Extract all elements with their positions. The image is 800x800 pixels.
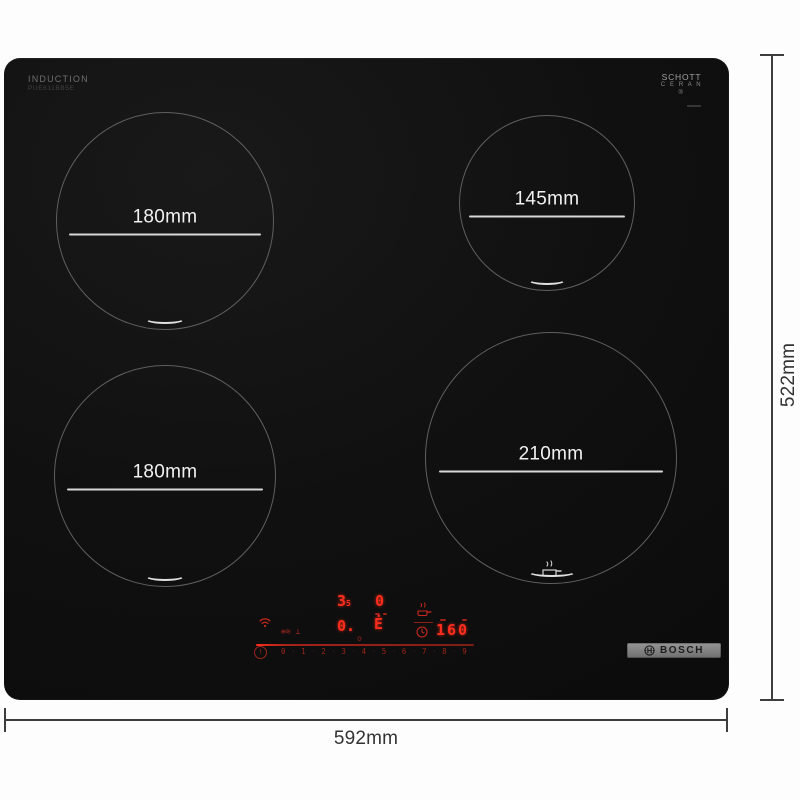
schott-text: SCHOTT — [659, 73, 704, 81]
width-dimension-cap-left — [4, 708, 6, 732]
slider-level: 3 — [341, 647, 346, 656]
cooking-zone-bottom-left: 180mm — [54, 365, 276, 587]
zone-diameter-label: 145mm — [515, 189, 580, 211]
zone-diameter-label: 210mm — [519, 444, 584, 466]
bosch-anchor-icon — [644, 645, 655, 656]
zone-notch-mark — [528, 567, 576, 577]
zone-notch-mark — [145, 314, 185, 324]
timer-display: 160 — [436, 623, 469, 638]
height-dimension-cap-bottom — [760, 699, 784, 701]
zone-diameter-line — [469, 216, 625, 218]
width-dimension-cap-right — [726, 708, 728, 732]
height-dimension-cap-top — [760, 54, 784, 56]
cooking-zone-top-right: 145mm — [459, 115, 635, 291]
burner-a-value: 3 — [337, 592, 346, 610]
width-dimension-line — [4, 719, 728, 721]
schott-fineprint-bar — [687, 105, 701, 107]
slider-level: 0 — [281, 647, 286, 656]
power-level-slider: 0· 1· 2· 3· 4· 5· 6· 7· 8· 9 — [281, 647, 467, 656]
zone-diameter-line — [67, 489, 263, 491]
zone-diameter-label: 180mm — [133, 207, 198, 229]
zone-notch-mark — [528, 275, 566, 285]
fry-sensor-icon — [415, 602, 432, 619]
burner-c-sub-glyph: o — [357, 634, 362, 643]
burner-display-b: 0 — [375, 594, 384, 609]
slider-level: 8 — [442, 647, 447, 656]
panel-divider-line — [414, 622, 433, 623]
cooktop-surface: INDUCTION PUE611BB5E SCHOTT C E R A N ® … — [4, 58, 729, 700]
induction-label: INDUCTION — [28, 74, 89, 84]
cooking-zone-bottom-right: 210mm — [425, 332, 677, 584]
ceran-text: C E R A N ® — [659, 81, 704, 97]
zone-diameter-line — [439, 471, 663, 473]
zone-notch-mark — [145, 571, 185, 581]
burner-display-a: 35 — [337, 594, 351, 611]
slider-level: 4 — [362, 647, 367, 656]
height-dimension-line — [771, 55, 773, 700]
burner-display-d: Ė — [374, 617, 383, 632]
slider-level: 9 — [462, 647, 467, 656]
zone-diameter-line — [69, 234, 261, 236]
wifi-icon — [258, 617, 272, 628]
cooking-zone-top-left: 180mm — [56, 112, 274, 330]
height-dimension-label: 522mm — [778, 343, 800, 407]
burner-display-c: 0. — [337, 619, 355, 634]
slider-level: 1 — [301, 647, 306, 656]
timer-clock-icon — [416, 626, 428, 638]
slider-track-line — [256, 644, 474, 646]
bosch-logo-badge: BOSCH — [627, 643, 721, 658]
keep-warm-function-icons: ≡≋ ⊥ — [281, 627, 300, 636]
power-lock-icon: ! — [254, 646, 267, 659]
slider-level: 6 — [402, 647, 407, 656]
schott-ceran-logo: SCHOTT C E R A N ® — [659, 73, 704, 107]
width-dimension-label: 592mm — [334, 728, 398, 750]
slider-level: 5 — [382, 647, 387, 656]
zone-diameter-label: 180mm — [133, 462, 198, 484]
slider-level: 7 — [422, 647, 427, 656]
product-dimension-diagram: INDUCTION PUE611BB5E SCHOTT C E R A N ® … — [0, 0, 800, 800]
bosch-wordmark: BOSCH — [660, 646, 704, 656]
burner-a-sub: 5 — [346, 599, 351, 608]
model-number-label: PUE611BB5E — [28, 85, 74, 92]
slider-level: 2 — [321, 647, 326, 656]
